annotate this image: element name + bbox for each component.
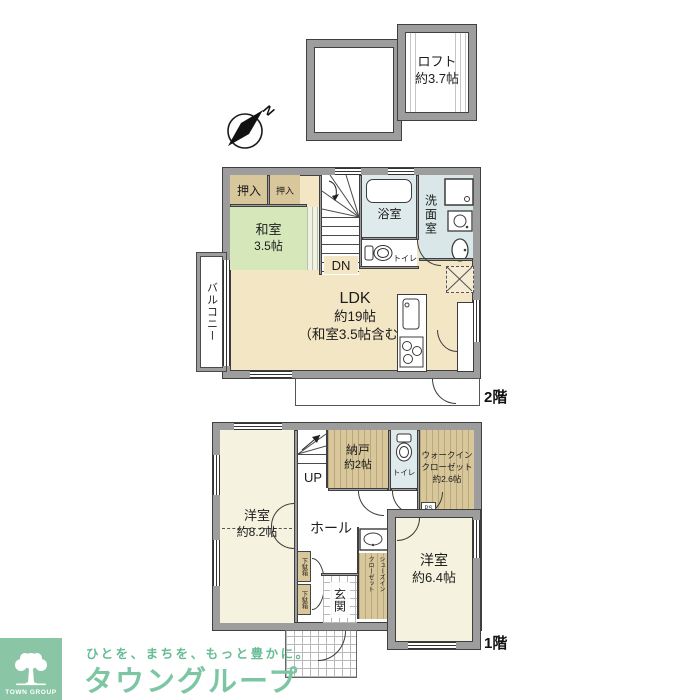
window-2f-right [473, 300, 480, 342]
stairs-1f-winder [298, 430, 326, 454]
tree-icon [10, 650, 52, 688]
shoe-closet-label: シューズイン クローゼット [361, 556, 386, 616]
wall-closet-divider [267, 175, 270, 205]
storage-label: 納戸 約2帖 [328, 438, 388, 478]
floor2-label: 2階 [484, 386, 507, 407]
washitsu-label: 和室 3.5帖 [230, 214, 307, 260]
toilet-2f-label: トイレ [393, 252, 417, 264]
window-bedroom-b-right [473, 520, 480, 558]
kitchen-sink-stove [398, 295, 425, 370]
window-2f-bottom [250, 371, 292, 378]
loft-label: ロフト 約3.7帖 [405, 50, 469, 90]
washing-machine-icon [444, 178, 474, 206]
balcony-label: バルコニー [201, 258, 222, 366]
loft-left-room [307, 40, 401, 140]
kitchen-counter [397, 294, 427, 372]
closet-b-label: 押入 [270, 175, 300, 205]
window-1f-left-a [213, 455, 220, 495]
window-ldk-balcony [223, 260, 230, 366]
wall-toilet-bottom-2f [359, 266, 419, 269]
shoe-box-b-label: 下駄箱 [297, 584, 311, 615]
refrigerator-space [446, 266, 474, 293]
toilet-1f-icon [394, 433, 414, 463]
brand-logo-text: TOWN GROUP [5, 689, 56, 696]
window-2f-top-b [388, 168, 414, 175]
genkan-label: 玄関 [330, 582, 350, 618]
closet-a-label: 押入 [230, 175, 268, 205]
ldk-label: LDK 約19帖 （和室3.5帖含む） [250, 287, 460, 345]
window-2f-top-a [335, 168, 361, 175]
floorplan-canvas: ロフト 約3.7帖 N 押入 押入 和室 3.5帖 DN [0, 0, 700, 700]
window-bedroom-b-bottom [408, 642, 456, 649]
brand-company-name: タウングループ [84, 658, 299, 700]
washroom-label: 洗面室 [423, 182, 439, 248]
wic-label: ウォークイン クローゼット 約2.6帖 [420, 446, 474, 488]
window-1f-top [234, 423, 282, 430]
stairs-2f-winder [322, 175, 359, 217]
stairs-up-label: UP [298, 468, 328, 486]
brand-logo-box: TOWN GROUP [0, 638, 62, 700]
bathtub [366, 179, 412, 203]
hall-sink-icon [359, 528, 389, 551]
hall-label: ホール [296, 518, 366, 538]
shoe-box-a-label: 下駄箱 [297, 551, 311, 582]
loft-room: ロフト 約3.7帖 [398, 25, 476, 120]
floor1-label: 1階 [484, 632, 507, 653]
stairs-down-label: DN [324, 256, 358, 274]
kitchen-cabinet [457, 302, 474, 372]
bedroom-b-label: 洋室 約6.4帖 [395, 548, 473, 588]
window-1f-left-b [213, 540, 220, 586]
toilet-2f-icon [364, 243, 394, 263]
toilet-1f-label: トイレ [389, 466, 419, 478]
compass-icon: N [218, 100, 276, 154]
svg-text:N: N [260, 102, 276, 120]
bathroom-label: 浴室 [362, 203, 417, 223]
washbasin-counter-icon [447, 210, 473, 232]
